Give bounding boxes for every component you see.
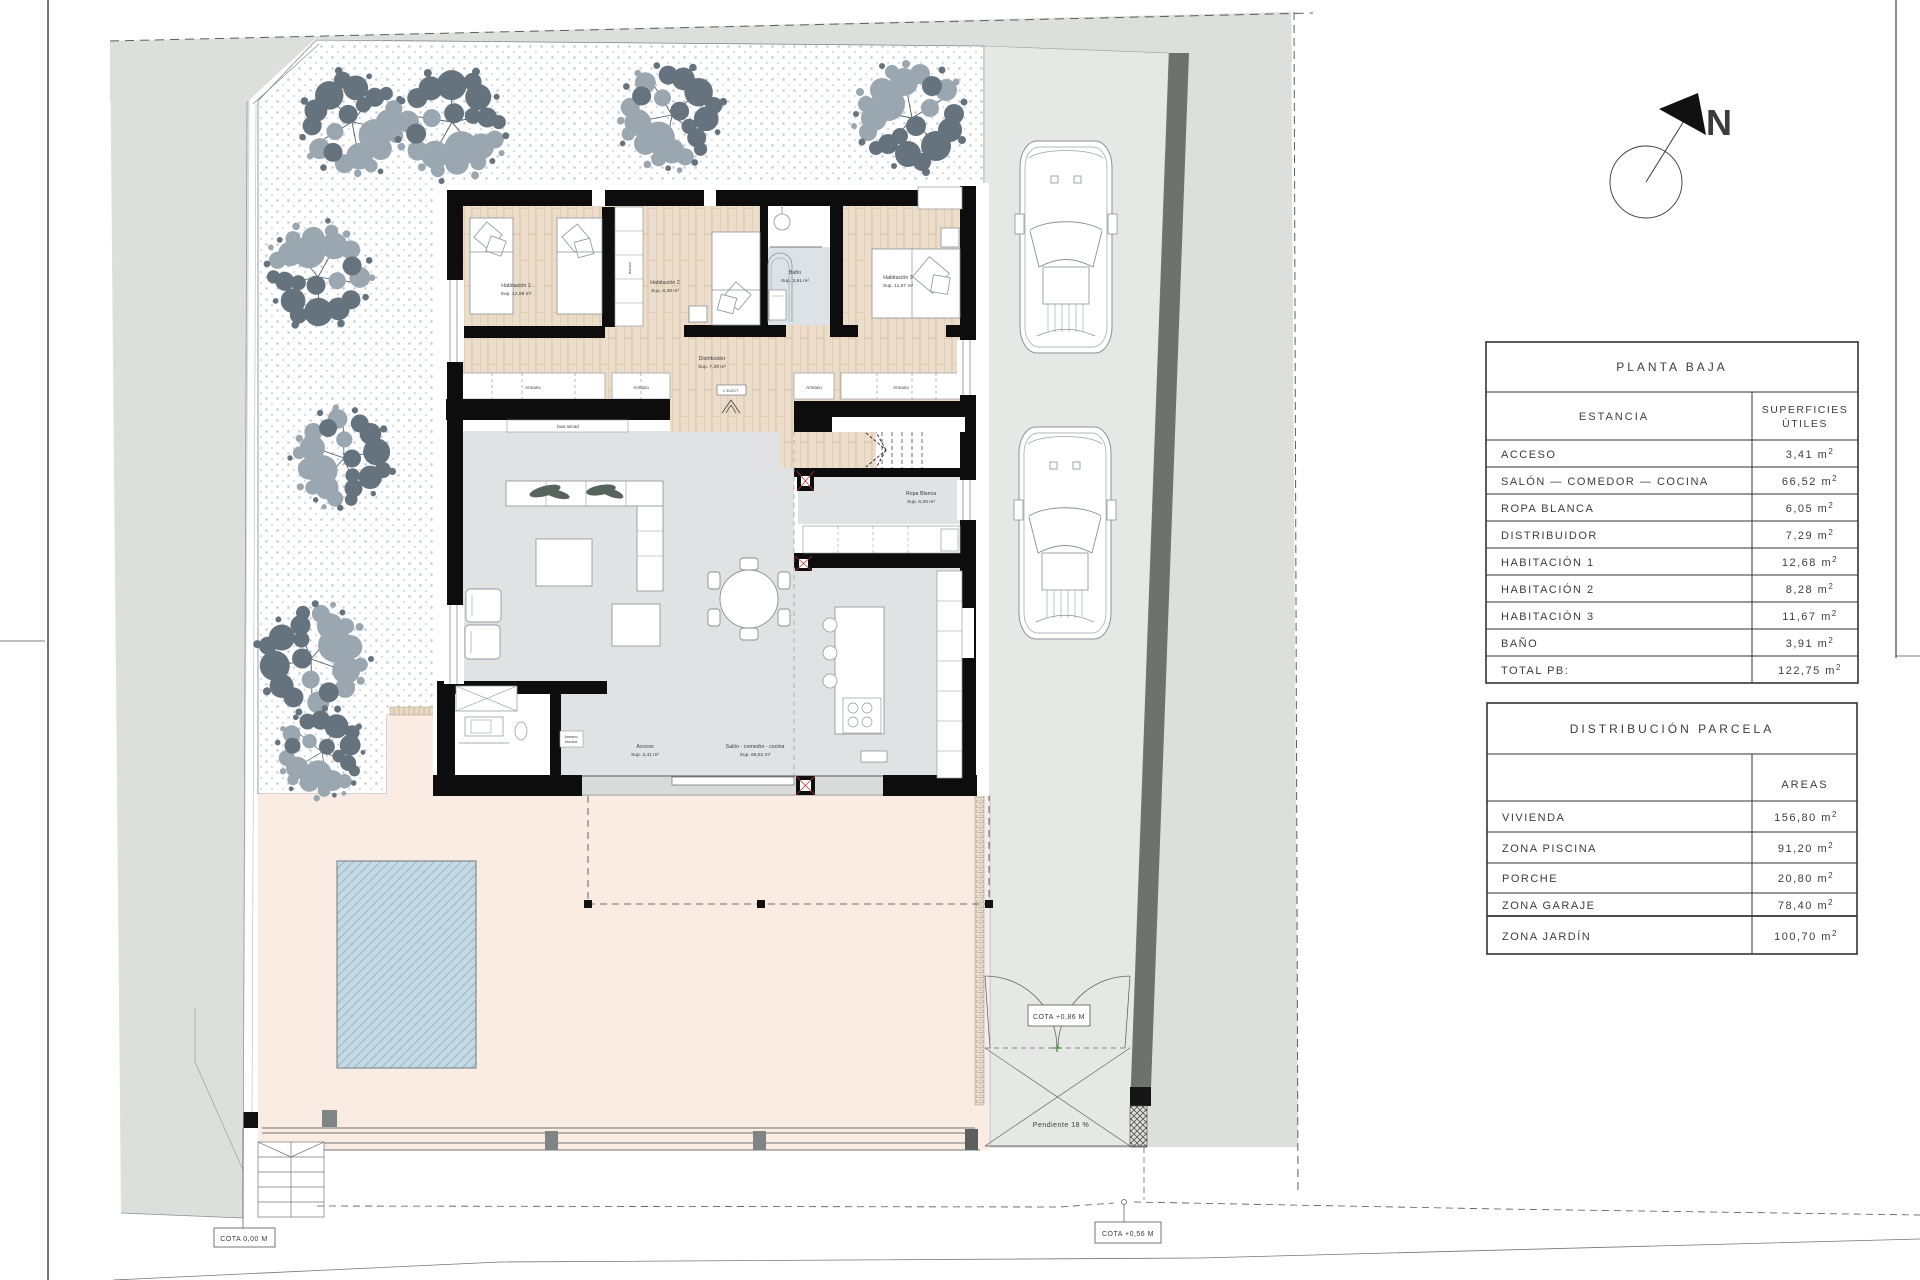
svg-text:Pendiente 18 %: Pendiente 18 % [1033,1122,1089,1129]
svg-text:HABITACIÓN 2: HABITACIÓN 2 [1501,583,1595,596]
svg-text:3,91 m2: 3,91 m2 [1786,636,1835,650]
svg-text:Armario: Armario [633,385,649,390]
svg-text:ÚTILES: ÚTILES [1782,417,1828,430]
svg-text:C.ELECT.: C.ELECT. [723,389,739,393]
svg-text:PORCHE: PORCHE [1502,873,1558,885]
svg-text:Sup. 3,91 m²: Sup. 3,91 m² [781,278,809,284]
svg-text:ROPA BLANCA: ROPA BLANCA [1501,503,1594,515]
svg-text:VIVIENDA: VIVIENDA [1502,812,1565,824]
svg-text:Sup. 12,68 m²: Sup. 12,68 m² [501,291,532,297]
svg-text:HABITACIÓN 1: HABITACIÓN 1 [1501,556,1595,569]
svg-text:escoba: escoba [565,740,578,744]
svg-text:Sup. 6,05 m²: Sup. 6,05 m² [907,499,935,505]
svg-text:ZONA JARDÍN: ZONA JARDÍN [1502,930,1591,943]
svg-text:Armario: Armario [806,385,822,390]
svg-text:COTA 0,00 M: COTA 0,00 M [220,1236,267,1243]
svg-text:SUPERFICIES: SUPERFICIES [1762,404,1849,416]
svg-text:78,40 m2: 78,40 m2 [1778,898,1834,912]
svg-text:ZONA PISCINA: ZONA PISCINA [1502,843,1597,855]
svg-text:6,05 m2: 6,05 m2 [1786,501,1835,515]
svg-text:HABITACIÓN 3: HABITACIÓN 3 [1501,610,1595,623]
svg-text:20,80 m2: 20,80 m2 [1778,871,1834,885]
svg-text:3,41 m2: 3,41 m2 [1786,447,1835,461]
svg-text:Distribuidor: Distribuidor [699,356,726,362]
svg-text:7,29 m2: 7,29 m2 [1786,528,1835,542]
svg-text:TOTAL PB:: TOTAL PB: [1501,665,1569,677]
svg-text:Armario: Armario [564,735,577,739]
svg-text:COTA +0,86 M: COTA +0,86 M [1033,1014,1085,1021]
svg-text:Armario: Armario [628,262,632,274]
svg-text:BAÑO: BAÑO [1501,637,1538,650]
svg-text:DISTRIBUCIÓN PARCELA: DISTRIBUCIÓN PARCELA [1570,721,1774,736]
svg-text:122,75 m2: 122,75 m2 [1778,663,1842,677]
svg-text:91,20 m2: 91,20 m2 [1778,841,1834,855]
svg-text:Salón - comedor - cocina: Salón - comedor - cocina [726,744,785,750]
svg-text:ZONA GARAJE: ZONA GARAJE [1502,900,1596,912]
svg-text:PLANTA BAJA: PLANTA BAJA [1616,360,1727,374]
svg-text:Habitación 3: Habitación 3 [883,275,913,281]
svg-text:11,67 m2: 11,67 m2 [1782,609,1837,623]
svg-text:Habitación 1: Habitación 1 [501,283,531,289]
svg-text:COTA +0,56 M: COTA +0,56 M [1102,1231,1154,1238]
svg-text:Sup. 7,29 m²: Sup. 7,29 m² [698,364,726,370]
svg-text:Sup. 11,67 m²: Sup. 11,67 m² [883,283,914,289]
svg-text:Armario: Armario [525,385,541,390]
svg-text:lava secad: lava secad [557,424,579,429]
svg-text:8,28 m2: 8,28 m2 [1786,582,1835,596]
svg-text:Sup. 8,28 m²: Sup. 8,28 m² [651,288,679,294]
svg-text:SALÓN — COMEDOR — COCINA: SALÓN — COMEDOR — COCINA [1501,475,1709,488]
svg-text:Armario: Armario [893,385,909,390]
svg-text:Sup. 3,41 m²: Sup. 3,41 m² [631,752,659,758]
svg-text:Sup. 66,52 m²: Sup. 66,52 m² [740,752,771,758]
svg-text:12,68 m2: 12,68 m2 [1782,555,1838,569]
svg-text:100,70 m2: 100,70 m2 [1774,929,1838,943]
svg-text:ESTANCIA: ESTANCIA [1579,411,1649,423]
svg-text:Ropa Blanca: Ropa Blanca [906,491,936,497]
svg-text:156,80 m2: 156,80 m2 [1774,810,1838,824]
svg-text:Habitación 2: Habitación 2 [650,280,680,286]
svg-text:N: N [1706,102,1732,143]
svg-text:ACCESO: ACCESO [1501,449,1556,461]
svg-text:DISTRIBUIDOR: DISTRIBUIDOR [1501,530,1598,542]
svg-text:Acceso: Acceso [636,744,653,750]
svg-text:66,52 m2: 66,52 m2 [1782,474,1838,488]
svg-text:AREAS: AREAS [1781,779,1828,791]
svg-text:Baño: Baño [789,270,801,276]
